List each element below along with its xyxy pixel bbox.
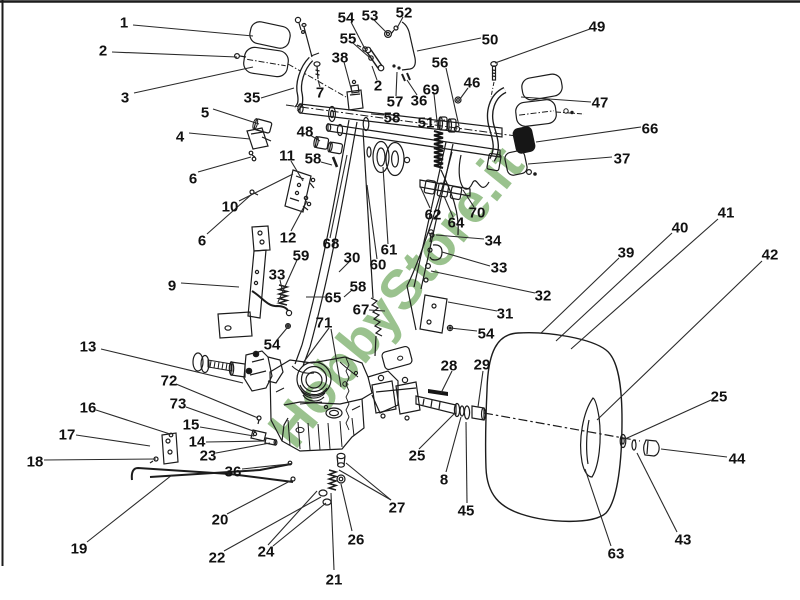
svg-text:26: 26 — [348, 532, 365, 549]
svg-text:28: 28 — [441, 358, 458, 375]
svg-text:10: 10 — [222, 199, 239, 216]
svg-text:33: 33 — [491, 260, 508, 277]
svg-text:58: 58 — [305, 151, 322, 168]
svg-text:6: 6 — [189, 171, 197, 188]
svg-text:20: 20 — [212, 512, 229, 529]
svg-text:67: 67 — [353, 302, 370, 319]
svg-text:64: 64 — [448, 215, 465, 232]
svg-text:31: 31 — [497, 306, 514, 323]
svg-text:58: 58 — [384, 110, 401, 127]
svg-text:33: 33 — [269, 267, 286, 284]
svg-text:12: 12 — [280, 230, 297, 247]
svg-text:41: 41 — [718, 205, 735, 222]
svg-text:60: 60 — [370, 257, 387, 274]
svg-text:2: 2 — [99, 43, 107, 60]
svg-text:63: 63 — [608, 546, 625, 563]
svg-text:42: 42 — [762, 247, 779, 264]
svg-text:16: 16 — [80, 400, 97, 417]
svg-text:61: 61 — [381, 242, 398, 259]
svg-text:39: 39 — [618, 245, 635, 262]
svg-text:57: 57 — [387, 94, 404, 111]
svg-text:59: 59 — [293, 248, 310, 265]
svg-text:66: 66 — [642, 121, 659, 138]
svg-text:70: 70 — [469, 205, 486, 222]
svg-text:43: 43 — [675, 532, 692, 549]
svg-text:55: 55 — [340, 31, 357, 48]
svg-text:54: 54 — [478, 326, 495, 343]
svg-text:48: 48 — [297, 124, 314, 141]
svg-text:15: 15 — [183, 417, 200, 434]
svg-text:8: 8 — [440, 472, 448, 489]
svg-text:40: 40 — [672, 220, 689, 237]
svg-text:37: 37 — [614, 151, 631, 168]
svg-text:44: 44 — [729, 451, 746, 468]
svg-text:25: 25 — [409, 448, 426, 465]
svg-text:3: 3 — [121, 90, 129, 107]
svg-text:24: 24 — [258, 544, 275, 561]
svg-text:68: 68 — [323, 236, 340, 253]
svg-text:54: 54 — [338, 10, 355, 27]
svg-text:9: 9 — [168, 278, 176, 295]
svg-text:36: 36 — [225, 464, 242, 481]
svg-text:30: 30 — [344, 250, 361, 267]
svg-text:13: 13 — [80, 339, 97, 356]
svg-text:35: 35 — [244, 90, 261, 107]
svg-text:58: 58 — [350, 279, 367, 296]
svg-text:50: 50 — [482, 32, 499, 49]
svg-text:18: 18 — [27, 454, 44, 471]
svg-text:1: 1 — [120, 15, 128, 32]
svg-text:53: 53 — [362, 8, 379, 25]
svg-text:25: 25 — [711, 389, 728, 406]
svg-text:71: 71 — [316, 315, 333, 332]
svg-text:27: 27 — [389, 500, 406, 517]
svg-text:34: 34 — [485, 233, 502, 250]
svg-text:11: 11 — [279, 148, 295, 165]
svg-text:22: 22 — [209, 550, 226, 567]
svg-text:23: 23 — [200, 448, 217, 465]
svg-text:32: 32 — [535, 288, 552, 305]
svg-text:2: 2 — [374, 78, 382, 95]
svg-text:56: 56 — [432, 55, 449, 72]
svg-text:36: 36 — [411, 93, 428, 110]
svg-text:21: 21 — [326, 572, 343, 589]
svg-text:6: 6 — [198, 233, 206, 250]
svg-text:29: 29 — [474, 357, 491, 374]
svg-text:49: 49 — [589, 19, 606, 36]
svg-text:45: 45 — [458, 503, 475, 520]
svg-text:7: 7 — [316, 85, 324, 102]
svg-text:52: 52 — [396, 5, 413, 22]
svg-text:51: 51 — [418, 115, 435, 132]
svg-text:46: 46 — [464, 75, 481, 92]
svg-text:17: 17 — [59, 427, 76, 444]
svg-text:62: 62 — [425, 207, 442, 224]
svg-text:5: 5 — [201, 105, 209, 122]
svg-text:73: 73 — [170, 396, 187, 413]
svg-text:47: 47 — [592, 95, 609, 112]
svg-text:54: 54 — [264, 337, 281, 354]
svg-text:72: 72 — [161, 373, 178, 390]
svg-text:38: 38 — [332, 50, 349, 67]
svg-text:65: 65 — [325, 290, 342, 307]
svg-text:19: 19 — [71, 541, 88, 558]
svg-text:4: 4 — [176, 129, 185, 146]
